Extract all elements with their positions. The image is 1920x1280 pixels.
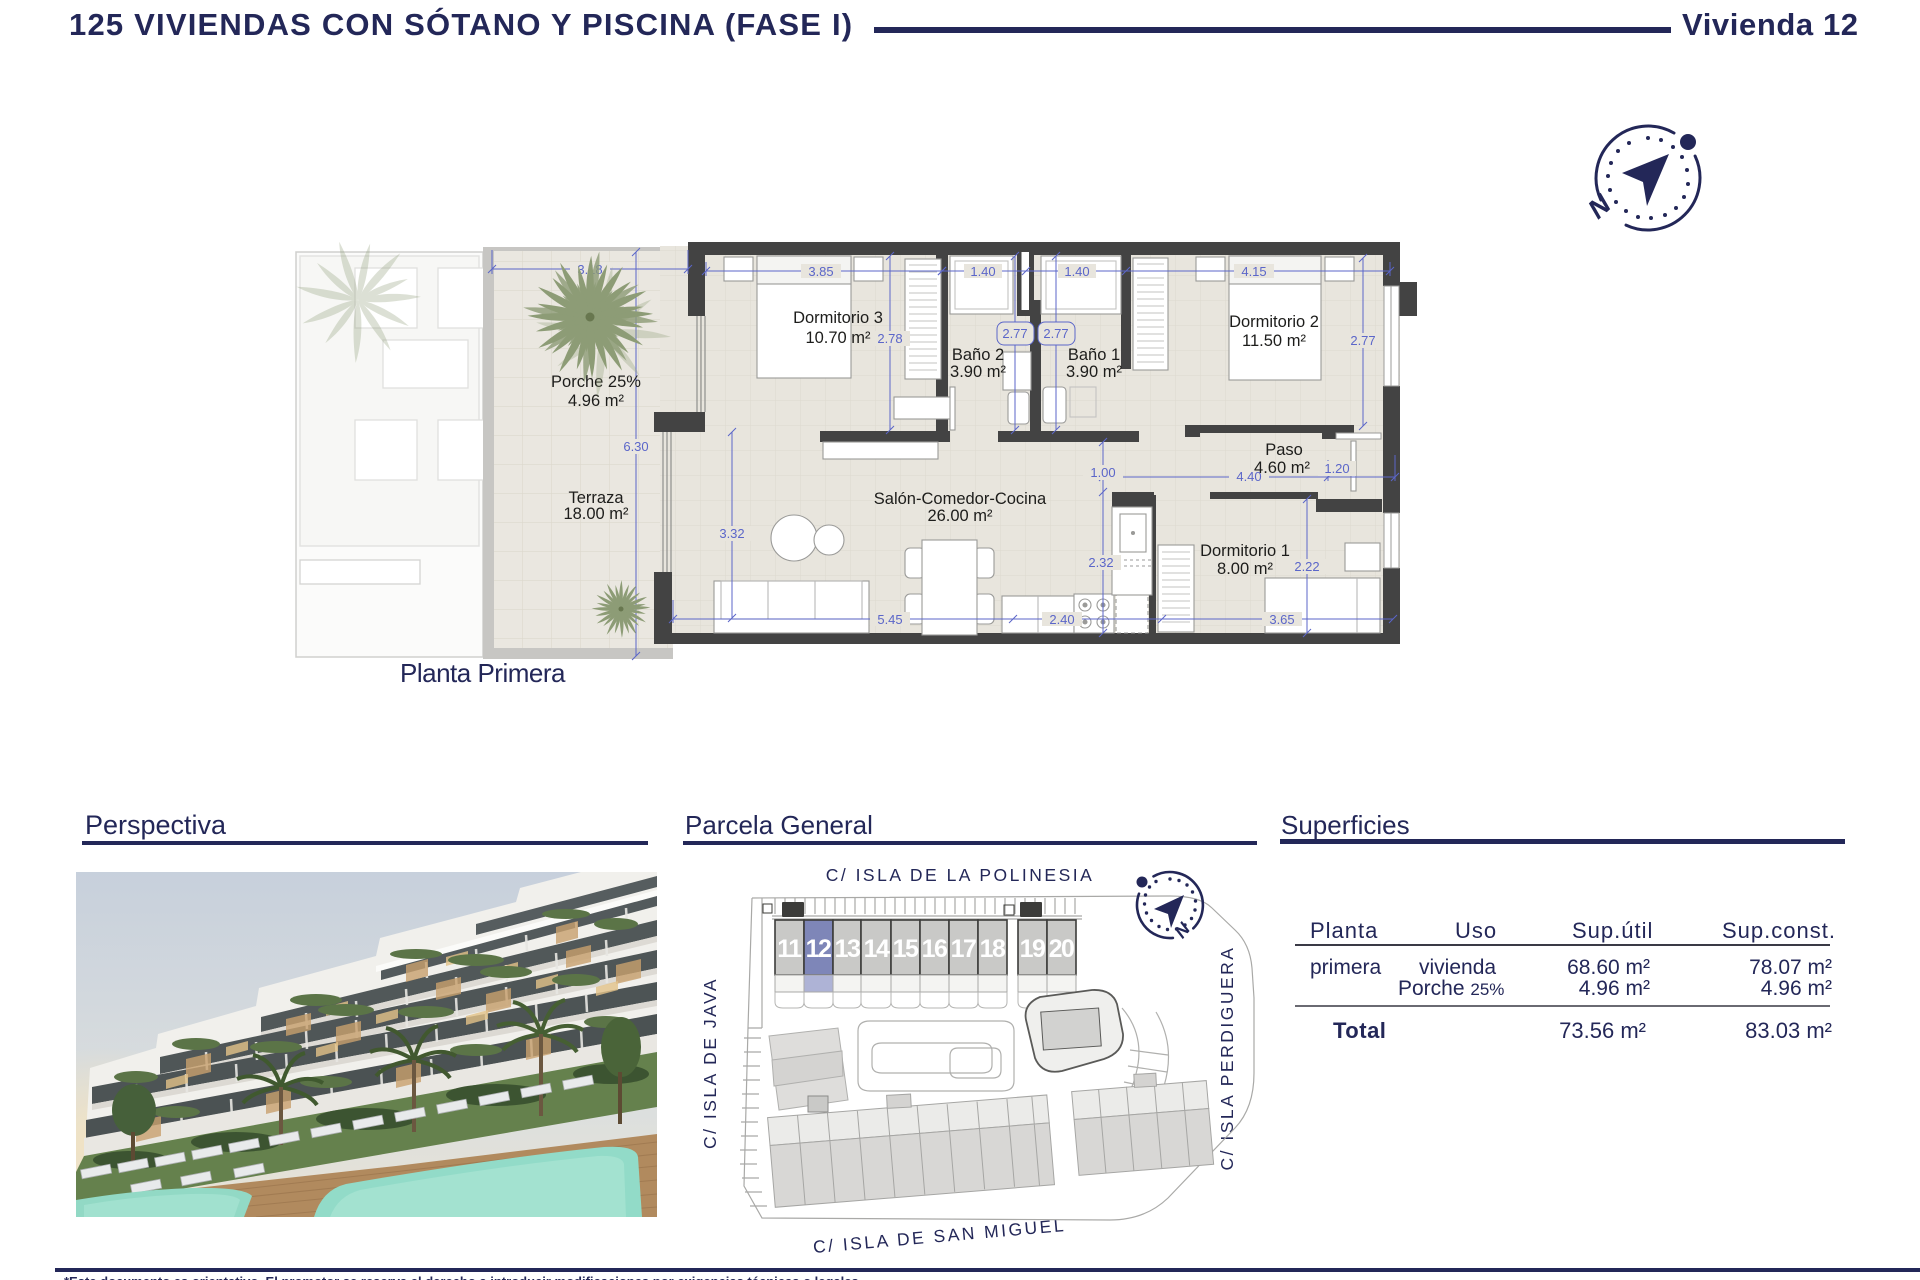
- svg-text:15: 15: [893, 935, 919, 963]
- svg-text:2.77: 2.77: [1002, 326, 1027, 341]
- svg-text:26.00 m²: 26.00 m²: [927, 507, 993, 525]
- svg-text:C/ ISLA DE JAVA: C/ ISLA DE JAVA: [700, 977, 720, 1149]
- svg-text:1.40: 1.40: [970, 264, 995, 279]
- svg-text:14: 14: [864, 935, 890, 963]
- svg-text:1.00: 1.00: [1090, 465, 1115, 480]
- svg-text:13: 13: [835, 935, 860, 963]
- svg-text:6.30: 6.30: [623, 439, 648, 454]
- svg-text:Baño 1: Baño 1: [1068, 346, 1120, 364]
- svg-text:Baño 2: Baño 2: [952, 346, 1004, 364]
- svg-text:16: 16: [922, 935, 947, 963]
- svg-text:3.32: 3.32: [719, 526, 744, 541]
- svg-text:2.77: 2.77: [1043, 326, 1068, 341]
- svg-text:Paso: Paso: [1265, 441, 1303, 459]
- svg-text:2.32: 2.32: [1088, 555, 1113, 570]
- svg-text:10.70 m²: 10.70 m²: [805, 329, 871, 347]
- svg-text:Dormitorio 2: Dormitorio 2: [1229, 313, 1319, 331]
- svg-text:11.50 m²: 11.50 m²: [1242, 332, 1306, 350]
- svg-text:18.00 m²: 18.00 m²: [563, 505, 629, 523]
- svg-text:4.96 m²: 4.96 m²: [568, 392, 624, 410]
- svg-text:N: N: [1588, 186, 1615, 226]
- svg-text:4.60 m²: 4.60 m²: [1254, 459, 1310, 477]
- svg-text:11: 11: [777, 935, 802, 963]
- svg-text:3.90 m²: 3.90 m²: [950, 363, 1006, 381]
- svg-text:2.78: 2.78: [877, 331, 902, 346]
- svg-text:19: 19: [1020, 935, 1045, 963]
- svg-text:1.40: 1.40: [1064, 264, 1089, 279]
- svg-text:5.45: 5.45: [877, 612, 902, 627]
- svg-text:12: 12: [806, 935, 831, 963]
- svg-text:2.40: 2.40: [1049, 612, 1074, 627]
- svg-text:Dormitorio 1: Dormitorio 1: [1200, 542, 1290, 560]
- svg-text:2.77: 2.77: [1350, 333, 1375, 348]
- svg-text:3.65: 3.65: [1269, 612, 1294, 627]
- svg-text:17: 17: [951, 935, 976, 963]
- svg-text:1.20: 1.20: [1324, 461, 1349, 476]
- svg-text:N: N: [1172, 917, 1193, 943]
- svg-text:Dormitorio 3: Dormitorio 3: [793, 309, 883, 327]
- svg-text:8.00 m²: 8.00 m²: [1217, 560, 1273, 578]
- svg-text:20: 20: [1049, 935, 1074, 963]
- svg-text:18: 18: [980, 935, 1006, 963]
- svg-text:4.15: 4.15: [1241, 264, 1266, 279]
- svg-text:3.90 m²: 3.90 m²: [1066, 363, 1122, 381]
- svg-text:2.22: 2.22: [1294, 559, 1319, 574]
- svg-text:3.85: 3.85: [808, 264, 833, 279]
- svg-text:Porche 25%: Porche 25%: [551, 373, 641, 391]
- svg-text:C/ ISLA DE SAN MIGUEL: C/ ISLA DE SAN MIGUEL: [812, 1215, 1067, 1257]
- svg-text:Salón-Comedor-Cocina: Salón-Comedor-Cocina: [874, 490, 1047, 508]
- svg-text:C/ ISLA DE LA POLINESIA: C/ ISLA DE LA POLINESIA: [826, 865, 1095, 885]
